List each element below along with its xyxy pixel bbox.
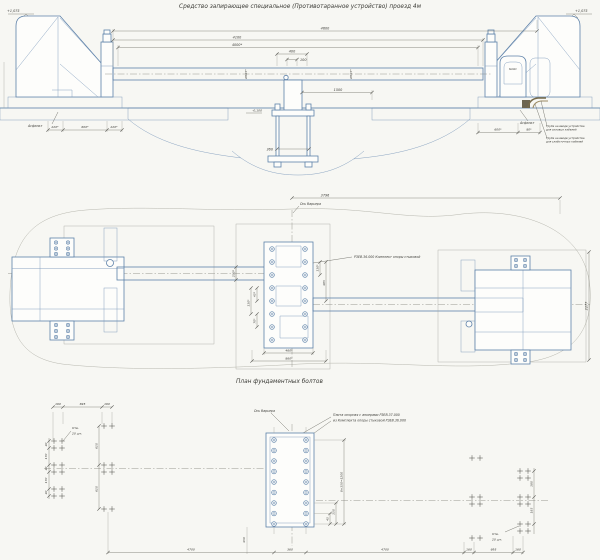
dim-485: 485: [322, 280, 326, 286]
level-left-value: +1,075: [7, 9, 20, 13]
boom-hinge: [284, 75, 288, 79]
dim-160-a: 160: [55, 402, 61, 406]
left-housing-body: [12, 257, 124, 321]
support-column: [284, 80, 302, 112]
plan-dimensions-top: 3796 Ось барьера: [290, 194, 561, 215]
left-pedestal: [8, 16, 122, 108]
plan-center-joint: РЗЕВ.36.000 Комплект опоры стыковой: [236, 224, 476, 369]
plate-note-line1: Плита опорная с анкерами РЗЕВ.37.000: [333, 413, 400, 417]
anchor-bottom-plate: [268, 156, 318, 162]
technical-drawing: Средство запирающее специальное (Противо…: [0, 0, 600, 560]
base-plate: [272, 110, 314, 116]
pipe-note2-line2: для слаботочных кабелей: [545, 140, 583, 144]
anchor-bolt-left: [276, 116, 279, 158]
dim-45: 45*: [253, 291, 257, 297]
dim-1500: 1500: [334, 88, 343, 92]
right-post-cap: [487, 34, 495, 42]
control-cabinet: БиОАС: [500, 56, 526, 97]
level-base: -0,100: [252, 109, 262, 113]
cabinet-label: БиОАС: [509, 68, 517, 71]
plate-note-line2: из Комплекта опоры стыковой РЗЕВ.36.000: [333, 419, 406, 423]
dim-40-a: 40: [44, 443, 48, 447]
roadbase-right: [372, 108, 600, 120]
dim-left-2: 600*: [81, 125, 89, 129]
anchor-plate: [266, 427, 314, 534]
bolt-axis-label: Ось барьера: [254, 409, 275, 413]
dim-total: 4600: [321, 27, 330, 31]
support-note: РЗЕВ.36.000 Комплект опоры стыковой: [354, 255, 420, 259]
elevation-view: Средство запирающее специальное (Противо…: [0, 4, 600, 175]
boom-elevation: [105, 68, 492, 80]
plate-dims: 8×150=1200 45 150: [314, 438, 346, 525]
dim-170-a: 170: [44, 454, 48, 460]
dim-160-b: 160: [104, 402, 110, 406]
cable-pipes: [522, 98, 548, 108]
left-wall-hatch-top: [104, 228, 117, 261]
dim-right-2: 80*: [526, 128, 532, 132]
left-post-cap: [103, 34, 111, 42]
pipe-note1-line2: для силовых кабелей: [545, 128, 577, 132]
right-bolt-field: Отв. 20 шт. 180 185: [316, 455, 548, 554]
dim-rows: 8×150=1200: [340, 472, 344, 492]
roadbase-left: [0, 108, 228, 120]
anchor-bolt-right: [307, 116, 310, 158]
dim-360-elev: 360: [267, 148, 273, 152]
asphalt-label-right: Асфальт: [519, 121, 535, 125]
boom-dia-right: Ø325*: [348, 69, 353, 80]
bolt-plan-title: План фундаментных болтов: [236, 379, 323, 385]
left-pivot: [107, 260, 114, 267]
dim-250: 250*: [232, 269, 236, 277]
joint-plate: [264, 242, 313, 348]
left-flange-top: [50, 238, 74, 257]
left-holes-note-line1: Отв.: [72, 426, 79, 430]
dim-695-b: 695: [491, 548, 497, 552]
dim-left-1: 220*: [51, 125, 59, 129]
dim-170-b: 170: [44, 478, 48, 484]
right-pivot: [466, 321, 472, 327]
left-post: [101, 42, 113, 97]
drawing-sheet: Средство запирающее специальное (Противо…: [0, 0, 600, 560]
dim-span: 4100: [233, 36, 242, 40]
plan-left-housing: [12, 226, 266, 344]
dim-40-c: 40: [44, 491, 48, 495]
dim-150: 150: [332, 509, 336, 515]
dim-695-a: 695: [80, 402, 86, 406]
dim-860: 860*: [285, 357, 293, 361]
dim-160-c: 160: [466, 548, 472, 552]
dim-460: 460*: [285, 349, 293, 353]
left-bolt-field: 160 695 160 Отв. 20 шт. 40 170 40 170 40…: [44, 402, 264, 512]
dim-610-b: 610: [95, 486, 99, 492]
dim-185: 185: [530, 508, 534, 514]
left-pedestal-body: [16, 16, 102, 97]
right-flange-bottom: [511, 350, 530, 364]
dim-110-left: 110*: [247, 299, 251, 307]
plan-view: 3796 Ось барьера РЗЕВ.36.000 Комплект оп…: [8, 194, 591, 370]
plan-axis-label: Ось барьера: [300, 202, 321, 206]
dim-360-bolts: 360: [287, 548, 293, 552]
dim-40-b: 40: [44, 467, 48, 471]
plan-right-housing: 2277: [438, 250, 591, 364]
bolt-plan-view: План фундаментных болтов Ось барьера Пли…: [44, 379, 548, 554]
drawing-title: Средство запирающее специальное (Противо…: [179, 4, 422, 10]
dim-4700-right: 4700: [381, 548, 389, 552]
dim-right-1: 600*: [494, 128, 502, 132]
right-holes-note-line1: Отв.: [492, 532, 499, 536]
dim-45b: 45: [326, 517, 330, 521]
left-base-slab: [8, 97, 122, 108]
dim-70: 70*: [253, 318, 257, 324]
dim-left-3: 220*: [110, 125, 118, 129]
right-flange-top: [511, 256, 530, 270]
dim-2277: 2277: [585, 301, 589, 310]
boom-dia-left: Ø325*: [243, 69, 248, 80]
left-flange-bottom: [50, 321, 74, 340]
dim-100: 100: [300, 58, 306, 62]
dim-610-a: 610: [95, 443, 99, 449]
asphalt-label-left: Асфальт: [27, 124, 43, 128]
level-right-value: +1,075: [575, 9, 588, 13]
dim-450: 450: [242, 537, 246, 543]
right-post: [485, 42, 497, 97]
left-holes-note-line2: 20 шт.: [72, 432, 82, 436]
bottom-dim-chain: 4700 360 4700 160 695 160 450: [106, 512, 524, 554]
dim-clear: 4000*: [232, 43, 243, 47]
dim-4700-left: 4700: [187, 548, 195, 552]
dim-160-d: 160: [515, 548, 521, 552]
dim-110-right: 110*: [316, 264, 320, 272]
right-holes-note-line2: 20 шт.: [492, 538, 502, 542]
dim-180: 180: [530, 481, 534, 487]
right-wall-hatch-top: [461, 260, 475, 291]
dim-400: 400: [289, 50, 295, 54]
dim-3796: 3796: [321, 194, 330, 198]
right-pedestal: БиОАС: [478, 16, 592, 108]
